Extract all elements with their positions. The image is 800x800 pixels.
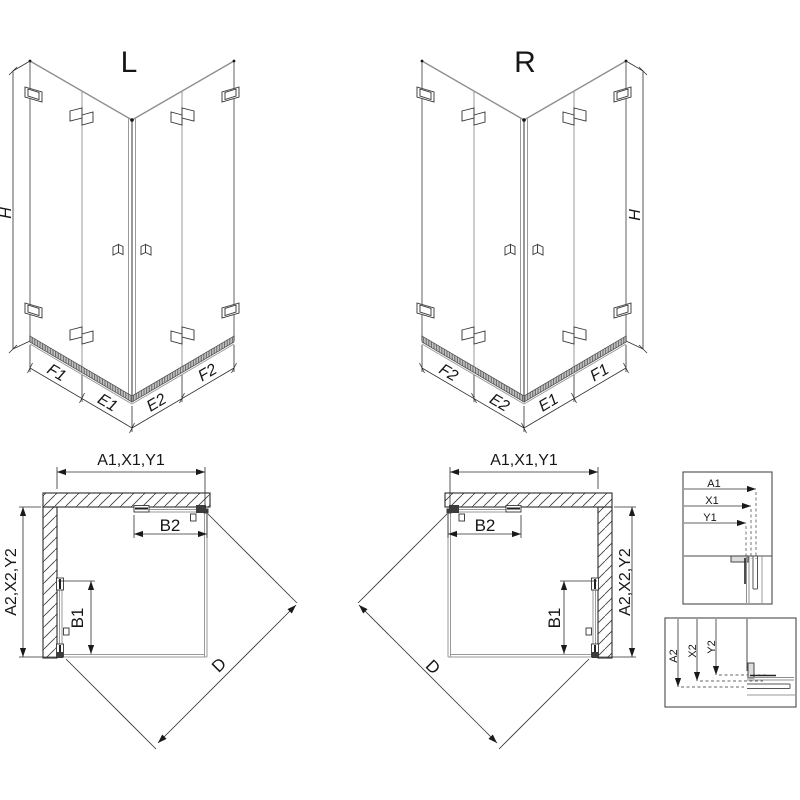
drawing-canvas: L H F1 E1 E2 F2 R H F2 E2 E1 F1 A1,X1,Y1… xyxy=(0,0,800,800)
plan-right-depth-label: A2,X2,Y2 xyxy=(617,548,634,616)
detail-x1-label: X1 xyxy=(705,495,718,507)
iso-left-label: L xyxy=(121,46,138,79)
plan-right-b2-label: B2 xyxy=(475,516,496,535)
plan-right-width-label: A1,X1,Y1 xyxy=(490,452,558,469)
plan-view-left: A1,X1,Y1 A2,X2,Y2 B2 B1 D xyxy=(3,452,297,749)
iso-view-left: L H F1 E1 E2 F2 xyxy=(0,46,239,433)
wall-hatch-top-left-plan xyxy=(43,493,210,507)
wall-hatch-side-left-plan xyxy=(43,507,57,658)
detail-y2-label: Y2 xyxy=(706,640,718,653)
wall-hatch-side-right-plan xyxy=(598,507,612,658)
plan-left-depth-label: A2,X2,Y2 xyxy=(3,548,20,616)
plan-left-d-label: D xyxy=(208,654,230,676)
shower-enclosure-technical-drawing: L H F1 E1 E2 F2 R H F2 E2 E1 F1 A1,X1,Y1… xyxy=(0,0,800,800)
wall-hatch-top-right-plan xyxy=(445,493,612,507)
detail-a2-label: A2 xyxy=(668,649,680,662)
plan-left-b2-label: B2 xyxy=(160,516,181,535)
detail-box-depth-dims: A2 X2 Y2 xyxy=(665,618,796,707)
plan-right-d-label: D xyxy=(422,656,444,678)
plan-right-b1-label: B1 xyxy=(545,608,564,629)
plan-left-b1-label: B1 xyxy=(68,608,87,629)
iso-view-right: R H F2 E2 E1 F1 xyxy=(417,46,647,433)
detail-x2-label: X2 xyxy=(687,644,699,657)
detail-box-width-dims: A1 X1 Y1 xyxy=(683,472,772,604)
detail-y1-label: Y1 xyxy=(703,512,716,524)
iso-right-label: R xyxy=(514,46,536,79)
plan-view-right: A1,X1,Y1 A2,X2,Y2 B2 B1 D xyxy=(358,452,636,749)
detail-a1-label: A1 xyxy=(707,478,720,490)
iso-right-height-label: H xyxy=(627,209,644,221)
plan-left-width-label: A1,X1,Y1 xyxy=(97,452,165,469)
iso-left-height-label: H xyxy=(0,207,15,219)
